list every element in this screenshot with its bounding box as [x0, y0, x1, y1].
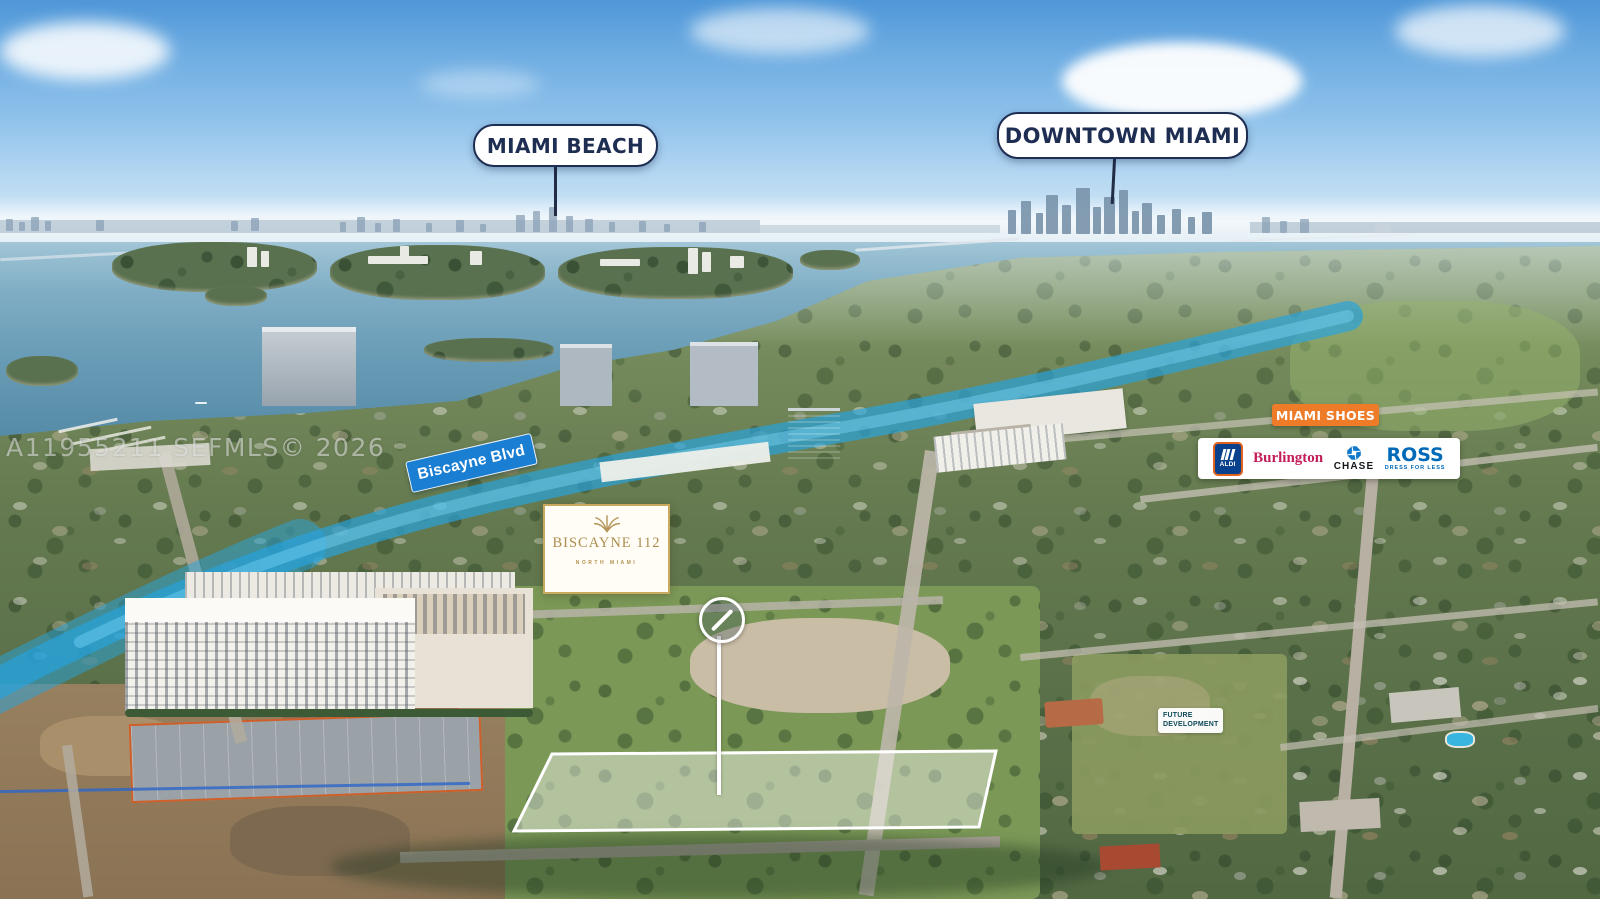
aldi-label: ALDI — [1220, 461, 1236, 468]
marker-stem-line — [717, 636, 721, 795]
marker-slash — [711, 609, 733, 631]
ross-tagline: DRESS FOR LESS — [1385, 466, 1446, 472]
chase-logo: CHASE — [1334, 445, 1375, 472]
mls-watermark: A11955211 SEFMLS© 2026 — [6, 433, 385, 462]
miami-shoes-label: MIAMI SHOES — [1276, 408, 1375, 423]
miami-shoes-banner: MIAMI SHOES — [1272, 404, 1379, 426]
biscayne-112-card: BISCAYNE 112 NORTH MIAMI — [543, 504, 670, 594]
callout-miami-beach: MIAMI BEACH — [473, 124, 658, 167]
future-development-line2: DEVELOPMENT — [1163, 720, 1218, 729]
aldi-logo: ALDI — [1213, 442, 1243, 476]
retailer-logo-bar: ALDI Burlington CHASE ROSS DRESS FOR LES… — [1198, 438, 1460, 479]
brand-name: BISCAYNE 112 — [552, 535, 660, 552]
callout-downtown-miami-label: DOWNTOWN MIAMI — [1005, 124, 1241, 148]
palm-fan-icon — [594, 513, 620, 533]
future-development-label: FUTURE DEVELOPMENT — [1158, 708, 1223, 733]
aldi-stripes-icon — [1222, 449, 1234, 460]
circle-slash-icon — [699, 597, 745, 643]
burlington-logo: Burlington — [1253, 450, 1323, 467]
aerial-photo: A11955211 SEFMLS© 2026 MIAMI BEACH DOWNT… — [0, 0, 1600, 899]
callout-downtown-miami: DOWNTOWN MIAMI — [997, 112, 1248, 159]
chase-octagon-icon — [1346, 445, 1362, 461]
parcel-outline — [514, 751, 996, 831]
future-development-line1: FUTURE — [1163, 711, 1218, 720]
miami-beach-leader-line — [554, 162, 557, 216]
ross-logo: ROSS DRESS FOR LESS — [1385, 446, 1446, 472]
brand-subtitle: NORTH MIAMI — [576, 560, 637, 566]
callout-miami-beach-label: MIAMI BEACH — [487, 134, 644, 158]
ross-label: ROSS — [1386, 446, 1443, 465]
chase-label: CHASE — [1334, 462, 1375, 472]
